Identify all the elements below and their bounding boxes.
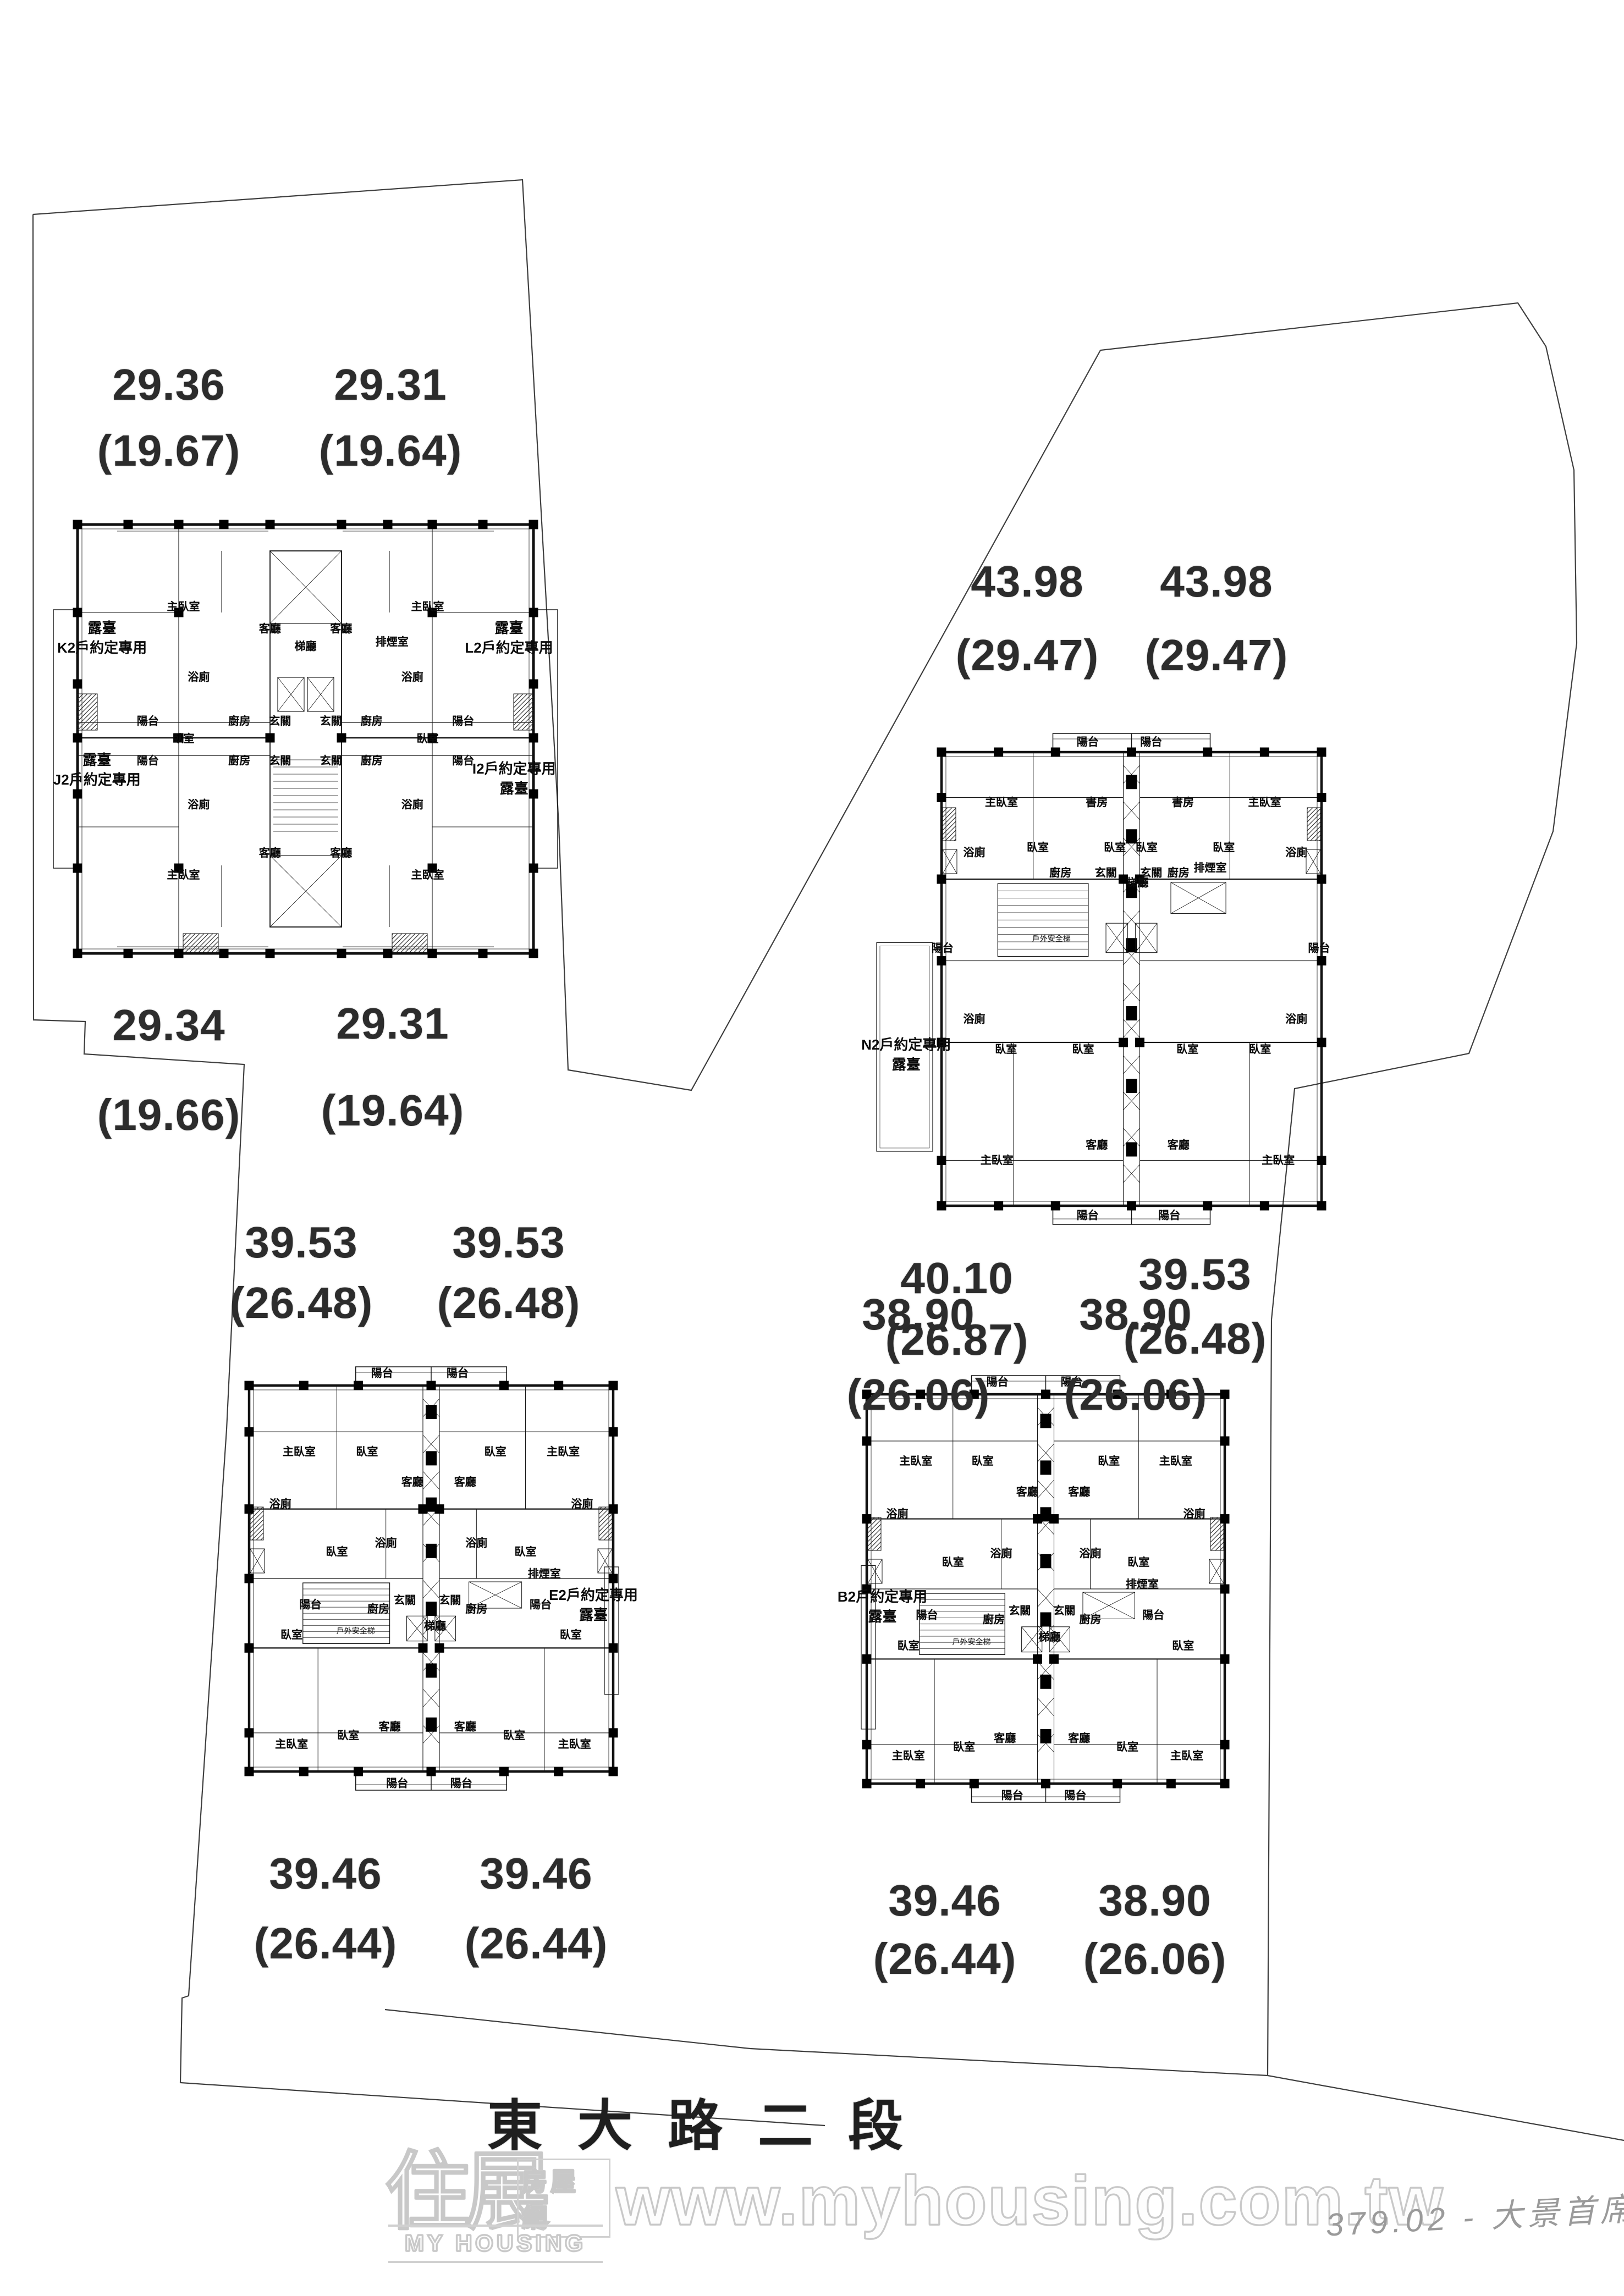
room-label: 廚房: [228, 755, 250, 767]
area-sub: (19.64): [264, 424, 517, 477]
room-label: 戶外安全梯: [337, 1625, 375, 1637]
room-label: 客廳: [1068, 1732, 1090, 1745]
area-sub: (26.44): [410, 1917, 663, 1970]
area-main: 38.90: [1079, 1290, 1192, 1339]
room-label: 陽台: [452, 715, 474, 727]
room-label: 陽台: [1308, 942, 1330, 954]
room-label: 臥室: [972, 1455, 994, 1467]
floor-plan-bottom-right: 陽台陽台主臥室主臥室臥室臥室浴廁浴廁客廳客廳臥室臥室浴廁浴廁玄關玄關廚房廚房陽台…: [860, 1369, 1231, 1809]
room-label: 臥室: [1027, 842, 1049, 854]
room-label: 廚房: [465, 1603, 487, 1615]
room-label: 排煙室: [528, 1568, 561, 1580]
room-label: 客廳: [401, 1476, 423, 1488]
room-label: 主臥室: [547, 1446, 580, 1458]
unit-terrace-label: I2戶約定專用露臺: [472, 759, 556, 798]
room-label: 玄關: [320, 715, 342, 727]
room-label: 臥室: [1116, 1741, 1138, 1753]
room-label: 排煙室: [1126, 1578, 1159, 1591]
area-main: 39.46: [269, 1849, 382, 1898]
room-label: 臥室: [1136, 842, 1158, 854]
room-label: 臥室: [337, 1730, 359, 1742]
logo-caption: MY HOUSING: [388, 2225, 603, 2263]
room-label: 主臥室: [1170, 1750, 1203, 1762]
room-label: 主臥室: [411, 601, 444, 613]
room-label: 浴廁: [1285, 1013, 1307, 1025]
room-label: 主臥室: [167, 601, 200, 613]
room-label: 主臥室: [892, 1750, 925, 1762]
room-label: 客廳: [330, 623, 352, 635]
room-label: 陽台: [1065, 1790, 1087, 1802]
watermark: 住展 房屋網 MY HOUSING www.myhousing.com.tw: [385, 2132, 1265, 2281]
unit-terrace-label: N2戶約定專用露臺: [861, 1035, 951, 1074]
room-label: 臥室: [1249, 1044, 1271, 1056]
room-label: 廚房: [1168, 867, 1190, 879]
room-label: 臥室: [1213, 842, 1235, 854]
room-label: 陽台: [452, 755, 474, 767]
room-label: 臥室: [173, 733, 195, 745]
floor-plan-drawing: [51, 519, 560, 959]
area-main: 39.53: [452, 1218, 565, 1267]
room-label: 浴廁: [401, 799, 423, 811]
room-label: 廚房: [361, 755, 383, 767]
area-main: 29.31: [336, 999, 449, 1048]
room-label: 臥室: [1104, 842, 1126, 854]
room-label: 浴廁: [964, 1013, 986, 1025]
room-label: 臥室: [1098, 1455, 1120, 1467]
room-label: 主臥室: [167, 869, 200, 881]
room-label: 玄關: [269, 715, 291, 727]
floor-plan-bottom-left: 陽台陽台主臥室主臥室臥室臥室浴廁浴廁客廳客廳臥室臥室浴廁浴廁玄關玄關廚房廚房陽台…: [243, 1360, 620, 1797]
unit-terrace-label: 露臺K2戶約定專用: [57, 618, 147, 658]
room-label: 玄關: [320, 755, 342, 767]
room-label: 主臥室: [1262, 1155, 1295, 1167]
room-label: 主臥室: [283, 1446, 316, 1458]
area-sub: (26.06): [1028, 1933, 1281, 1985]
room-label: 客廳: [330, 847, 352, 859]
area-figure: 29.36(19.67): [42, 358, 295, 477]
unit-terrace-label: E2戶約定專用露臺: [549, 1585, 638, 1625]
area-sub: (26.48): [382, 1277, 635, 1329]
room-label: 梯廳: [1038, 1631, 1060, 1643]
room-label: 臥室: [356, 1446, 378, 1458]
area-figure: 29.34(19.66): [42, 999, 295, 1141]
room-label: 浴廁: [465, 1537, 487, 1549]
room-label: 臥室: [1127, 1557, 1149, 1569]
room-label: 客廳: [454, 1721, 476, 1733]
area-main: 29.31: [334, 360, 447, 409]
room-label: 浴廁: [1080, 1548, 1102, 1560]
room-label: 臥室: [417, 733, 439, 745]
floor-plan-drawing: [243, 1360, 620, 1797]
room-label: 陽台: [386, 1778, 408, 1790]
room-label: 浴廁: [990, 1548, 1012, 1560]
room-label: 陽台: [450, 1778, 472, 1790]
room-label: 客廳: [994, 1732, 1016, 1745]
floor-plan-right: 陽台陽台主臥室書房書房主臥室浴廁浴廁臥室臥室臥室臥室玄關玄關廚房廚房陽台陽台梯廳…: [874, 727, 1328, 1231]
room-label: 臥室: [995, 1044, 1017, 1056]
site-plan-page: 梯廳排煙室主臥室主臥室主臥室主臥室浴廁浴廁浴廁浴廁臥室臥室客廳客廳客廳客廳玄關玄…: [0, 0, 1624, 2296]
room-label: 客廳: [1068, 1486, 1090, 1498]
room-label: 臥室: [898, 1640, 920, 1652]
area-figure: 38.90(26.06): [1028, 1874, 1281, 1985]
room-label: 陽台: [1077, 1210, 1099, 1222]
myhousing-logo: 住展 房屋網 MY HOUSING: [385, 2132, 610, 2275]
room-label: 臥室: [515, 1546, 537, 1558]
area-figure: 29.31(19.64): [264, 358, 517, 477]
room-label: 玄關: [439, 1594, 461, 1607]
room-label: 臥室: [953, 1741, 975, 1753]
room-label: 廚房: [983, 1614, 1005, 1626]
room-label: 浴廁: [1285, 847, 1307, 859]
room-label: 陽台: [530, 1599, 552, 1611]
area-main: 38.90: [1098, 1876, 1211, 1925]
room-label: 臥室: [1176, 1044, 1198, 1056]
room-label: 主臥室: [981, 1155, 1014, 1167]
room-label: 臥室: [1072, 1044, 1094, 1056]
room-label: 臥室: [485, 1446, 507, 1458]
room-label: 廚房: [367, 1603, 389, 1615]
room-label: 玄關: [269, 755, 291, 767]
room-label: 陽台: [932, 942, 954, 954]
area-main: 39.53: [245, 1218, 357, 1267]
room-label: 書房: [1172, 797, 1194, 809]
area-sub: (19.66): [42, 1089, 295, 1141]
room-label: 臥室: [560, 1629, 582, 1641]
area-figure: 29.31(19.64): [266, 997, 519, 1137]
room-label: 臥室: [326, 1546, 348, 1558]
room-label: 陽台: [1077, 736, 1099, 748]
room-label: 客廳: [259, 847, 281, 859]
room-label: 排煙室: [376, 636, 409, 648]
room-label: 玄關: [1009, 1605, 1031, 1617]
room-label: 浴廁: [188, 671, 210, 683]
room-label: 客廳: [379, 1721, 401, 1733]
room-label: 主臥室: [899, 1455, 932, 1467]
room-label: 浴廁: [1183, 1508, 1205, 1520]
room-label: 客廳: [1168, 1139, 1190, 1151]
room-label: 浴廁: [887, 1508, 909, 1520]
room-label: 臥室: [1172, 1640, 1194, 1652]
room-label: 浴廁: [375, 1537, 397, 1549]
area-sub: (29.47): [1090, 629, 1343, 682]
room-label: 陽台: [137, 715, 159, 727]
room-label: 客廳: [1016, 1486, 1038, 1498]
room-label: 臥室: [942, 1557, 964, 1569]
room-label: 主臥室: [411, 869, 444, 881]
room-label: 玄關: [1095, 867, 1117, 879]
unit-terrace-label: 露臺J2戶約定專用: [53, 750, 141, 790]
room-label: 陽台: [1142, 1609, 1164, 1621]
room-label: 戶外安全梯: [1032, 932, 1071, 945]
room-label: 書房: [1086, 797, 1108, 809]
room-label: 陽台: [1158, 1210, 1180, 1222]
area-main: 43.98: [1160, 557, 1273, 606]
area-main: 29.36: [112, 360, 225, 409]
room-label: 戶外安全梯: [953, 1636, 991, 1648]
room-label: 陽台: [447, 1367, 469, 1379]
room-label: 梯廳: [1127, 877, 1149, 889]
room-label: 陽台: [371, 1367, 393, 1379]
area-figure: 39.53(26.48): [382, 1216, 635, 1329]
room-label: 主臥室: [985, 797, 1018, 809]
room-label: 玄關: [1053, 1605, 1075, 1617]
room-label: 廚房: [228, 715, 250, 727]
room-label: 浴廁: [401, 671, 423, 683]
room-label: 排煙室: [1194, 862, 1227, 874]
unit-terrace-label: 露臺L2戶約定專用: [465, 618, 553, 658]
room-label: 主臥室: [275, 1738, 308, 1751]
room-label: 廚房: [1049, 867, 1071, 879]
room-label: 主臥室: [1159, 1455, 1192, 1467]
room-label: 客廳: [1086, 1139, 1108, 1151]
room-label: 廚房: [361, 715, 383, 727]
room-label: 浴廁: [571, 1498, 593, 1510]
room-label: 主臥室: [558, 1738, 591, 1751]
area-sub: (26.06): [792, 1368, 1045, 1421]
area-figure: 43.98(29.47): [1090, 555, 1343, 682]
area-main: 43.98: [971, 557, 1083, 606]
room-label: 梯廳: [424, 1620, 446, 1632]
watermark-url: www.myhousing.com.tw: [616, 2161, 1444, 2240]
area-sub: (19.64): [266, 1084, 519, 1137]
room-label: 玄關: [394, 1594, 416, 1607]
area-figure: 39.46(26.44): [410, 1847, 663, 1970]
area-figure: 38.90(26.06): [792, 1288, 1045, 1421]
floor-plan-top-left: 梯廳排煙室主臥室主臥室主臥室主臥室浴廁浴廁浴廁浴廁臥室臥室客廳客廳客廳客廳玄關玄…: [51, 519, 560, 959]
area-main: 39.46: [888, 1876, 1001, 1925]
room-label: 浴廁: [188, 799, 210, 811]
room-label: 浴廁: [964, 847, 986, 859]
room-label: 主臥室: [1248, 797, 1281, 809]
room-label: 陽台: [299, 1599, 321, 1611]
unit-terrace-label: B2戶約定專用露臺: [838, 1587, 927, 1626]
room-label: 廚房: [1080, 1614, 1102, 1626]
area-sub: (19.67): [42, 424, 295, 477]
area-figure: 38.90(26.06): [1009, 1288, 1262, 1421]
room-label: 梯廳: [295, 641, 317, 653]
room-label: 臥室: [503, 1730, 525, 1742]
area-main: 29.34: [112, 1001, 225, 1050]
room-label: 客廳: [259, 623, 281, 635]
area-sub: (26.06): [1009, 1368, 1262, 1421]
room-label: 客廳: [454, 1476, 476, 1488]
area-main: 39.46: [480, 1849, 592, 1898]
room-label: 臥室: [280, 1629, 302, 1641]
room-label: 浴廁: [269, 1498, 291, 1510]
room-label: 陽台: [1001, 1790, 1023, 1802]
area-main: 38.90: [862, 1290, 975, 1339]
room-label: 陽台: [1140, 736, 1162, 748]
